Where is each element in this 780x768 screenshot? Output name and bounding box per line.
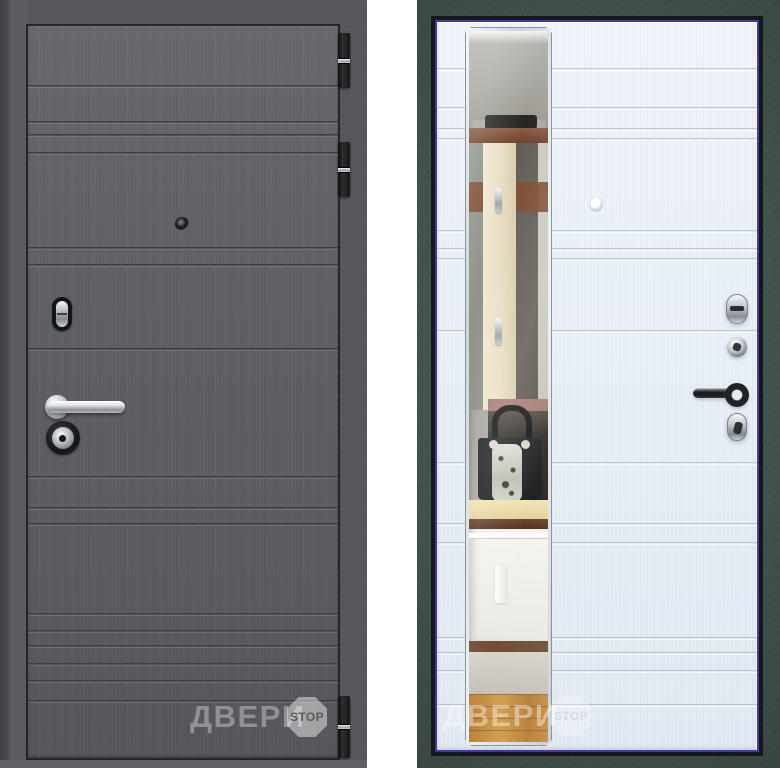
- door-hinge: [338, 142, 350, 197]
- groove-line: [28, 680, 338, 683]
- door-hinge: [338, 696, 350, 758]
- mirror-reflection-shelf: [469, 128, 548, 143]
- watermark-stop-badge: STOP: [287, 697, 327, 737]
- groove-line: [28, 630, 338, 633]
- cylinder-escutcheon: [727, 413, 747, 441]
- lock-cylinder: [46, 421, 80, 455]
- watermark-brand-text: ДВЕРИ: [443, 700, 559, 731]
- groove-line: [28, 85, 338, 88]
- mirror-reflection-hook: [495, 188, 502, 213]
- groove-line: [28, 613, 338, 616]
- hinge-pin: [338, 58, 350, 64]
- groove-line: [28, 507, 338, 510]
- hinge-pin: [338, 724, 350, 730]
- groove-line: [28, 134, 338, 137]
- product-image: ДВЕРИ STOP: [0, 0, 780, 768]
- groove-line: [28, 247, 338, 250]
- lock-knob: [727, 337, 747, 357]
- door-frame-bottom: [0, 760, 367, 768]
- mirror-reflection-wall: [469, 31, 548, 120]
- mirror-reflection-shelf-items: [485, 115, 537, 129]
- groove-line: [28, 476, 338, 479]
- groove-line: [28, 645, 338, 648]
- door-back-photo: ДВЕРИ STOP: [417, 0, 780, 768]
- mirror-reflection-pompom: [489, 440, 498, 449]
- door-frame-left-edge: [0, 0, 8, 768]
- hinge-pin: [338, 167, 350, 173]
- thumbturn-escutcheon: [726, 294, 748, 324]
- door-front-photo: ДВЕРИ STOP: [0, 0, 367, 768]
- watermark-badge-text: STOP: [554, 709, 588, 723]
- groove-line: [28, 264, 338, 267]
- back-door-leaf: ДВЕРИ STOP: [437, 22, 757, 750]
- peephole: [590, 198, 602, 210]
- mirror-reflection-rack-board: [483, 143, 516, 410]
- front-door-leaf: [28, 26, 338, 758]
- groove-line: [28, 523, 338, 526]
- peephole: [175, 217, 189, 231]
- mirror: [465, 27, 552, 746]
- groove-line: [28, 663, 338, 666]
- mirror-reflection-handbag-handle: [492, 405, 532, 441]
- mirror-reflection-pompom: [521, 440, 530, 449]
- door-handle: [47, 401, 125, 413]
- keyhole-escutcheon: [52, 297, 72, 331]
- watermark-badge-text: STOP: [290, 710, 324, 724]
- handle-rosette: [725, 383, 749, 407]
- mirror-reflection-floor-rug: [469, 652, 548, 694]
- mirror-reflection-floor-edge: [469, 641, 548, 652]
- groove-line: [28, 152, 338, 155]
- mirror-reflection-counter-edge: [469, 519, 548, 529]
- groove-line: [28, 348, 338, 351]
- mirror-reflection-cabinet: [469, 529, 548, 641]
- door-hinge: [338, 33, 350, 88]
- mirror-reflection: [469, 31, 548, 742]
- watermark-stop-badge: STOP: [551, 696, 591, 736]
- mirror-reflection-counter: [469, 500, 548, 519]
- mirror-reflection-scarf: [492, 444, 522, 502]
- mirror-reflection-cabinet-handle: [495, 565, 507, 603]
- groove-line: [28, 121, 338, 124]
- mirror-reflection-hook: [495, 318, 502, 345]
